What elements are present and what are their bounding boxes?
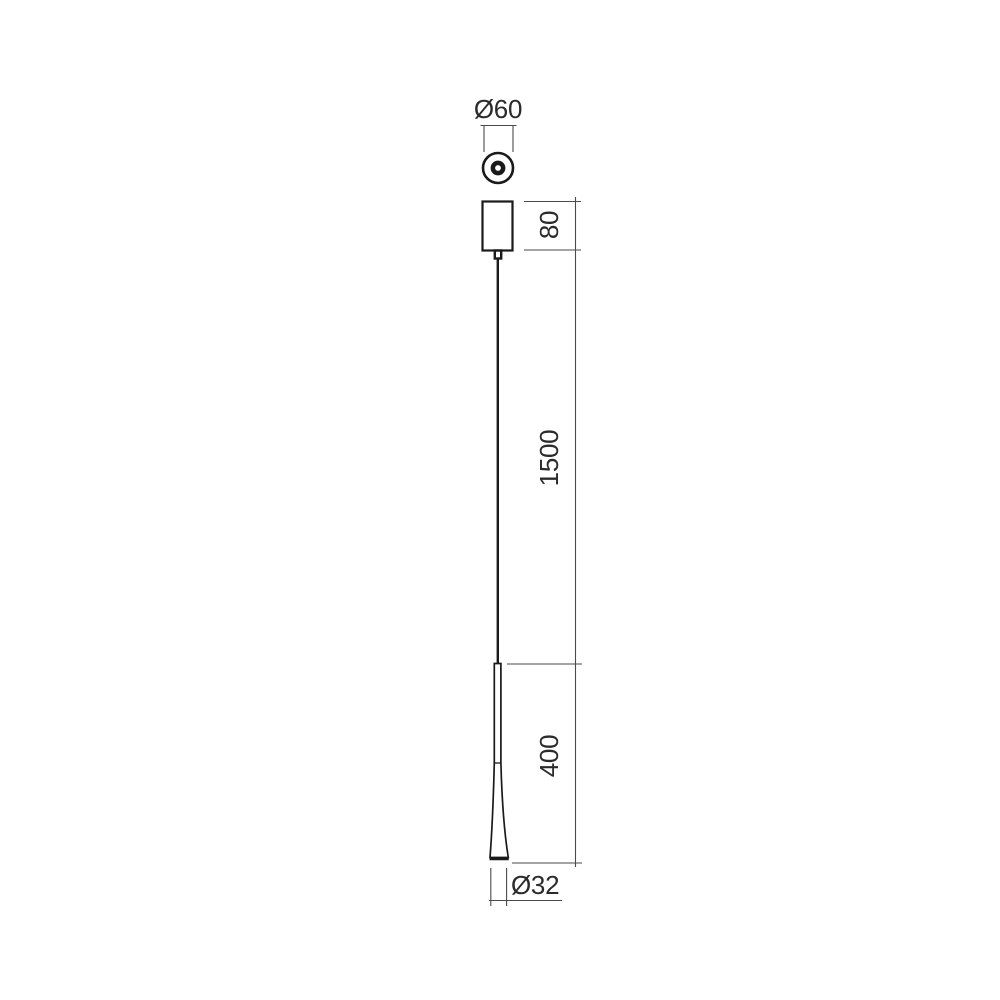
dimension-canopy-diameter: Ø60 xyxy=(474,94,522,152)
canopy-top-view xyxy=(483,153,513,183)
cable-grip-nub xyxy=(495,251,501,259)
canopy-center-hole xyxy=(495,165,501,171)
dimension-body-diameter: Ø32 xyxy=(489,868,562,906)
pendant-body-outline xyxy=(490,664,508,858)
dimension-label-body-height: 400 xyxy=(534,735,564,777)
pendant-lamp-dimension-drawing: Ø60 80 xyxy=(0,0,1000,1000)
canopy-front-view xyxy=(483,202,513,259)
dimension-label-canopy-height: 80 xyxy=(534,211,564,239)
pendant-front-view xyxy=(490,664,509,859)
dimension-label-canopy-diameter: Ø60 xyxy=(474,94,522,124)
dimension-label-body-diameter: Ø32 xyxy=(511,870,559,900)
canopy-body xyxy=(483,202,513,251)
drawing-canvas: Ø60 80 xyxy=(0,0,1000,1000)
dimension-chain-right: 80 1500 400 xyxy=(507,197,582,867)
dimension-label-cable-length: 1500 xyxy=(534,430,564,487)
